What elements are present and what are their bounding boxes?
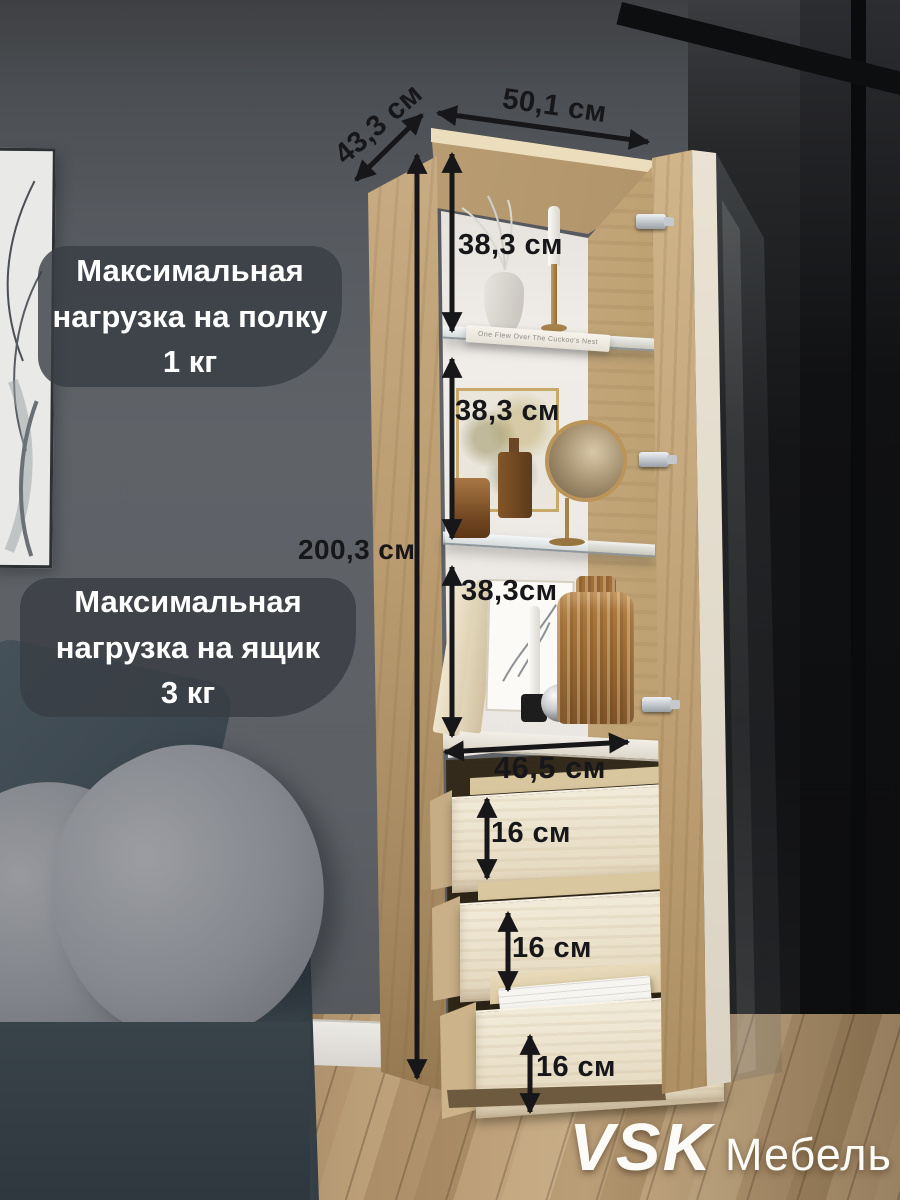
mirror-base <box>549 538 585 546</box>
width-dimension-label: 50,1 см <box>500 83 608 130</box>
shelf-spacing-label-3: 38,3см <box>461 575 557 608</box>
partition-mullion <box>851 0 866 1078</box>
max-shelf-load-callout: Максимальная нагрузка на полку 1 кг <box>38 246 342 387</box>
shelf-spacing-label-1: 38,3 см <box>458 229 563 262</box>
amber-candle-jar <box>450 478 490 538</box>
shelf-spacing-label-2: 38,3 см <box>455 395 560 428</box>
book-spine-text: One Flew Over The Cuckoo's Nest <box>478 331 598 346</box>
diffuser-bottle <box>498 452 532 518</box>
mirror-stand <box>565 498 569 540</box>
inner-width-label: 46,5 см <box>494 750 606 786</box>
drawer-height-label-3: 16 см <box>536 1051 616 1084</box>
max-drawer-load-callout: Максимальная нагрузка на ящик 3 кг <box>20 578 356 717</box>
hinge-middle-icon <box>639 452 669 467</box>
drawer-height-label-2: 16 см <box>512 932 592 965</box>
brand-suffix: Мебель <box>725 1129 892 1181</box>
ribbed-amber-vase <box>557 592 634 724</box>
glass-partition-pane <box>800 0 900 1078</box>
candle-bottom-shelf <box>528 606 540 698</box>
round-mirror <box>545 420 627 502</box>
brand-name: VSK <box>569 1109 713 1186</box>
hinge-bottom-icon <box>642 697 672 712</box>
hinge-top-icon <box>636 214 666 229</box>
depth-dimension-label: 43,3 см <box>322 72 436 177</box>
drawer-height-label-1: 16 см <box>491 817 571 850</box>
product-dimension-image: One Flew Over The Cuckoo's Nest <box>0 0 900 1200</box>
height-dimension-label: 200,3 см <box>298 534 415 566</box>
sofa-seat <box>0 1022 310 1200</box>
white-vase <box>484 272 524 334</box>
brand-logo: VSK Мебель <box>569 1109 892 1186</box>
candlestick-stem <box>551 264 557 326</box>
